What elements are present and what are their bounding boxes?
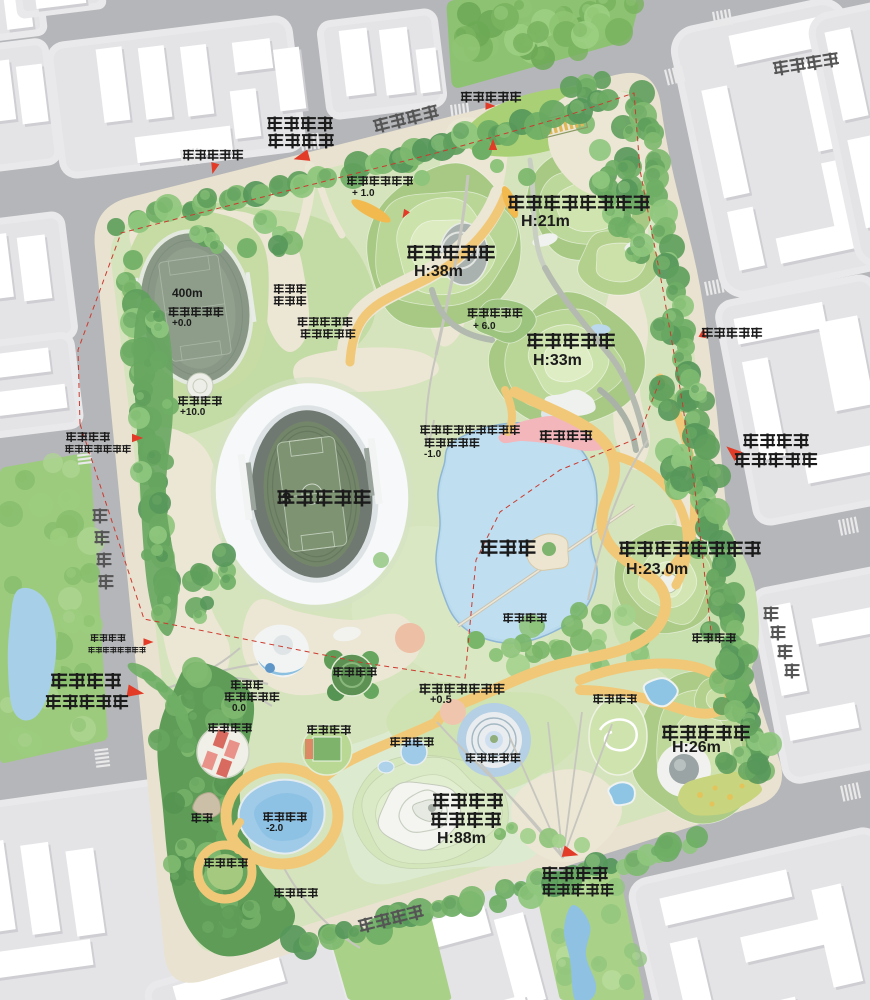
- svg-text:+0.5: +0.5: [430, 694, 452, 706]
- svg-text:-2.0: -2.0: [266, 823, 284, 834]
- svg-text:H:38m: H:38m: [414, 263, 463, 280]
- svg-text:-1.0: -1.0: [424, 449, 442, 460]
- svg-text:H:21m: H:21m: [521, 213, 570, 230]
- svg-text:H:33m: H:33m: [533, 352, 582, 369]
- svg-text:0.0: 0.0: [232, 703, 246, 714]
- svg-text:+ 6.0: + 6.0: [473, 321, 496, 332]
- svg-text:400m: 400m: [172, 286, 203, 300]
- svg-text:H:26m: H:26m: [672, 739, 721, 756]
- svg-text:H:23.0m: H:23.0m: [626, 561, 688, 578]
- svg-text:H:88m: H:88m: [437, 830, 486, 847]
- svg-text:+ 1.0: + 1.0: [352, 188, 375, 199]
- svg-text:+10.0: +10.0: [180, 407, 206, 418]
- svg-text:+0.0: +0.0: [172, 318, 192, 329]
